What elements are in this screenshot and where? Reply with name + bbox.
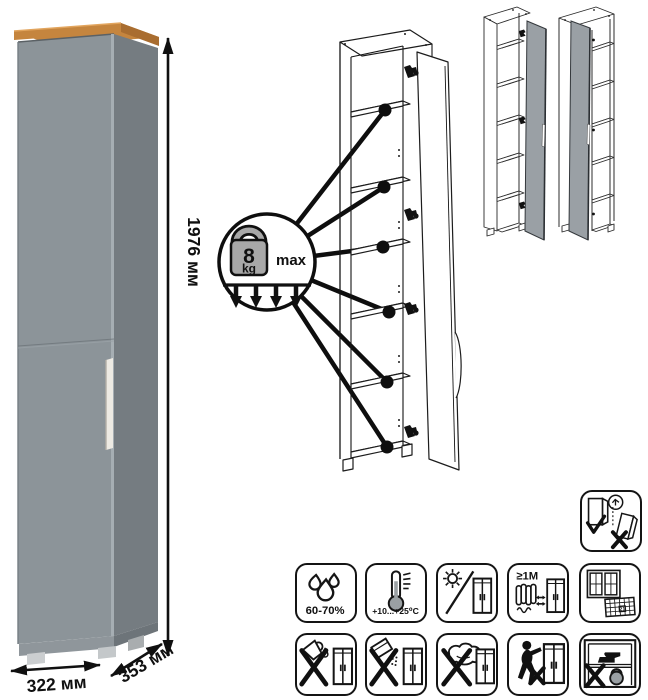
load-max-label: max (276, 252, 307, 269)
temperature-icon: +10...+25⁰C (365, 563, 427, 623)
shelf-load-diagram: 8 kg max (219, 30, 461, 471)
depth-label: 353 мм (115, 639, 177, 687)
cabinet-photo (14, 23, 159, 665)
temperature-label: +10...+25⁰C (372, 606, 419, 616)
door-variant-right-hinge (484, 7, 546, 240)
no-wet-cloth-icon (436, 633, 498, 696)
ventilation-icon: 21 (579, 563, 641, 623)
cabinet-side-panel (114, 34, 158, 636)
heat-distance-label: ≥1М (516, 570, 538, 582)
no-direct-sunlight-icon (436, 563, 498, 623)
anti-tip-anchor-icon (580, 490, 642, 552)
humidity-icon: 60-70% (295, 563, 357, 623)
shelf-pointer-dots (377, 104, 396, 454)
heat-source-distance-icon: ≥1М (507, 563, 569, 623)
variant-handle (587, 124, 590, 145)
humidity-label: 60-70% (306, 605, 345, 617)
cabinet-door (18, 34, 114, 644)
hinge-hardware (404, 65, 419, 438)
load-unit: kg (242, 262, 256, 276)
shelf-pin-dots (344, 33, 427, 427)
no-dragging-icon (507, 633, 569, 696)
height-label: 1976 мм (184, 217, 204, 287)
cabinet-foot (98, 646, 116, 659)
no-abrasives-icon (365, 633, 427, 696)
cabinet-handle (106, 358, 113, 450)
width-arrow (11, 665, 100, 671)
calendar-day-label: 21 (619, 606, 625, 612)
no-overload-icon (579, 633, 641, 696)
cabinet-foot (27, 652, 45, 665)
variant-handle (542, 124, 545, 147)
no-liquids-icon (295, 633, 357, 696)
open-door-drawing (417, 52, 461, 470)
load-callout: 8 kg max (219, 214, 315, 310)
door-variant-left-hinge (559, 7, 614, 240)
width-label: 322 мм (26, 672, 87, 696)
product-sheet: 1976 мм 322 мм 353 мм (0, 0, 648, 700)
